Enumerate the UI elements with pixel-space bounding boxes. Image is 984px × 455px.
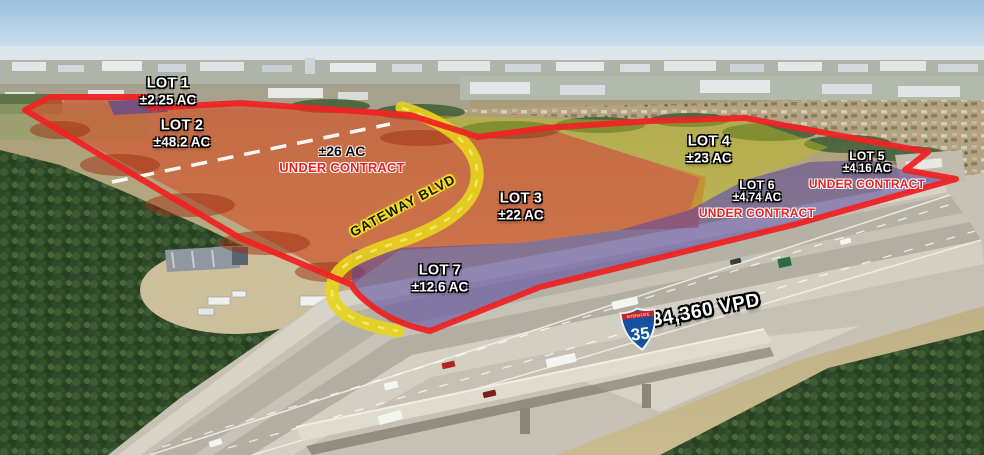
parcel-26-acreage: ±26 AC	[279, 143, 405, 160]
aerial-site-plan: LOT 1 ±2.25 AC LOT 2 ±48.2 AC ±26 AC UND…	[0, 0, 984, 455]
right-industrial	[460, 76, 984, 100]
parcel-26-label: ±26 AC UNDER CONTRACT	[279, 143, 405, 175]
lot-3-name: LOT 3	[498, 190, 543, 207]
lot-4-name: LOT 4	[686, 133, 731, 150]
lot-6-label: LOT 6 ±4.74 AC UNDER CONTRACT	[699, 178, 815, 220]
lot-1-label: LOT 1 ±2.25 AC	[140, 75, 196, 108]
lot-2-acreage: ±48.2 AC	[154, 135, 210, 151]
lot-5-name: LOT 5	[809, 149, 925, 163]
lot-3-label: LOT 3 ±22 AC	[498, 190, 543, 223]
lot-1-acreage: ±2.25 AC	[140, 93, 196, 109]
lot-7-label: LOT 7 ±12.6 AC	[412, 262, 468, 295]
lot-7-name: LOT 7	[412, 262, 468, 279]
lot-5-label: LOT 5 ±4.16 AC UNDER CONTRACT	[809, 149, 925, 191]
lot-2-name: LOT 2	[154, 117, 210, 134]
lot-5-status: UNDER CONTRACT	[809, 177, 925, 191]
bridge-pier	[520, 408, 530, 434]
lot-4-label: LOT 4 ±23 AC	[686, 133, 731, 166]
lot-4-acreage: ±23 AC	[686, 151, 731, 167]
interstate-35-shield: INTERSTATE 35	[618, 304, 662, 359]
lot-7-acreage: ±12.6 AC	[412, 280, 468, 296]
lot-5-acreage: ±4.16 AC	[809, 163, 925, 177]
aerial-photo	[0, 0, 984, 455]
lot-3-acreage: ±22 AC	[498, 208, 543, 224]
lot-6-acreage: ±4.74 AC	[699, 192, 815, 206]
lot-2-label: LOT 2 ±48.2 AC	[154, 117, 210, 150]
lot-6-status: UNDER CONTRACT	[699, 206, 815, 220]
bridge-pier	[642, 384, 651, 408]
shield-number: 35	[630, 323, 651, 344]
lot-1-name: LOT 1	[140, 75, 196, 92]
lot-6-name: LOT 6	[699, 178, 815, 192]
parcel-26-status: UNDER CONTRACT	[279, 160, 405, 175]
